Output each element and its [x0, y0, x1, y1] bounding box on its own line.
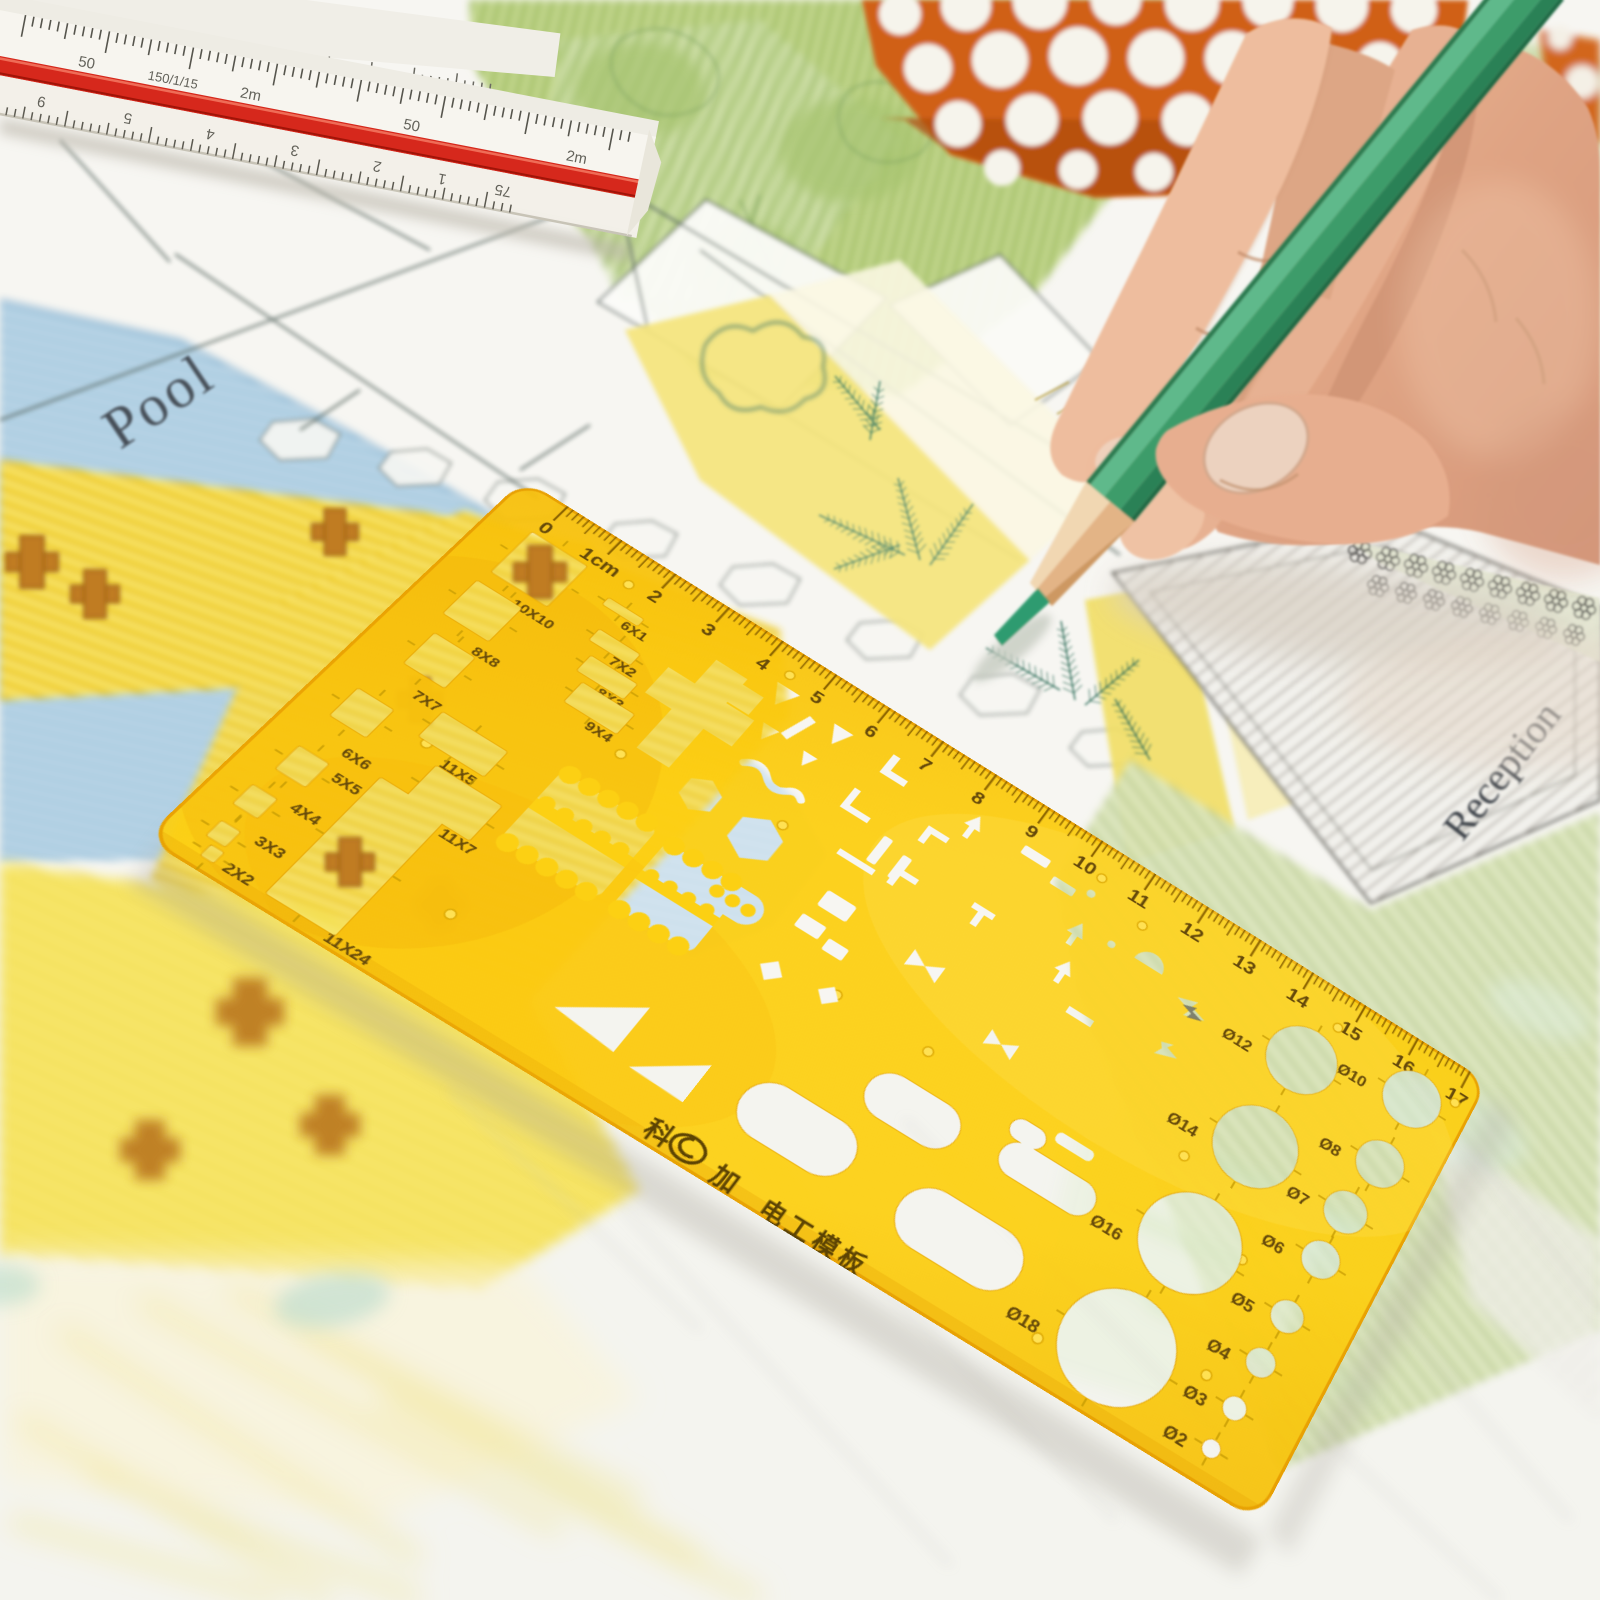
svg-text:50: 50 — [77, 53, 97, 73]
svg-text:50: 50 — [402, 116, 422, 136]
svg-text:75: 75 — [493, 180, 513, 200]
